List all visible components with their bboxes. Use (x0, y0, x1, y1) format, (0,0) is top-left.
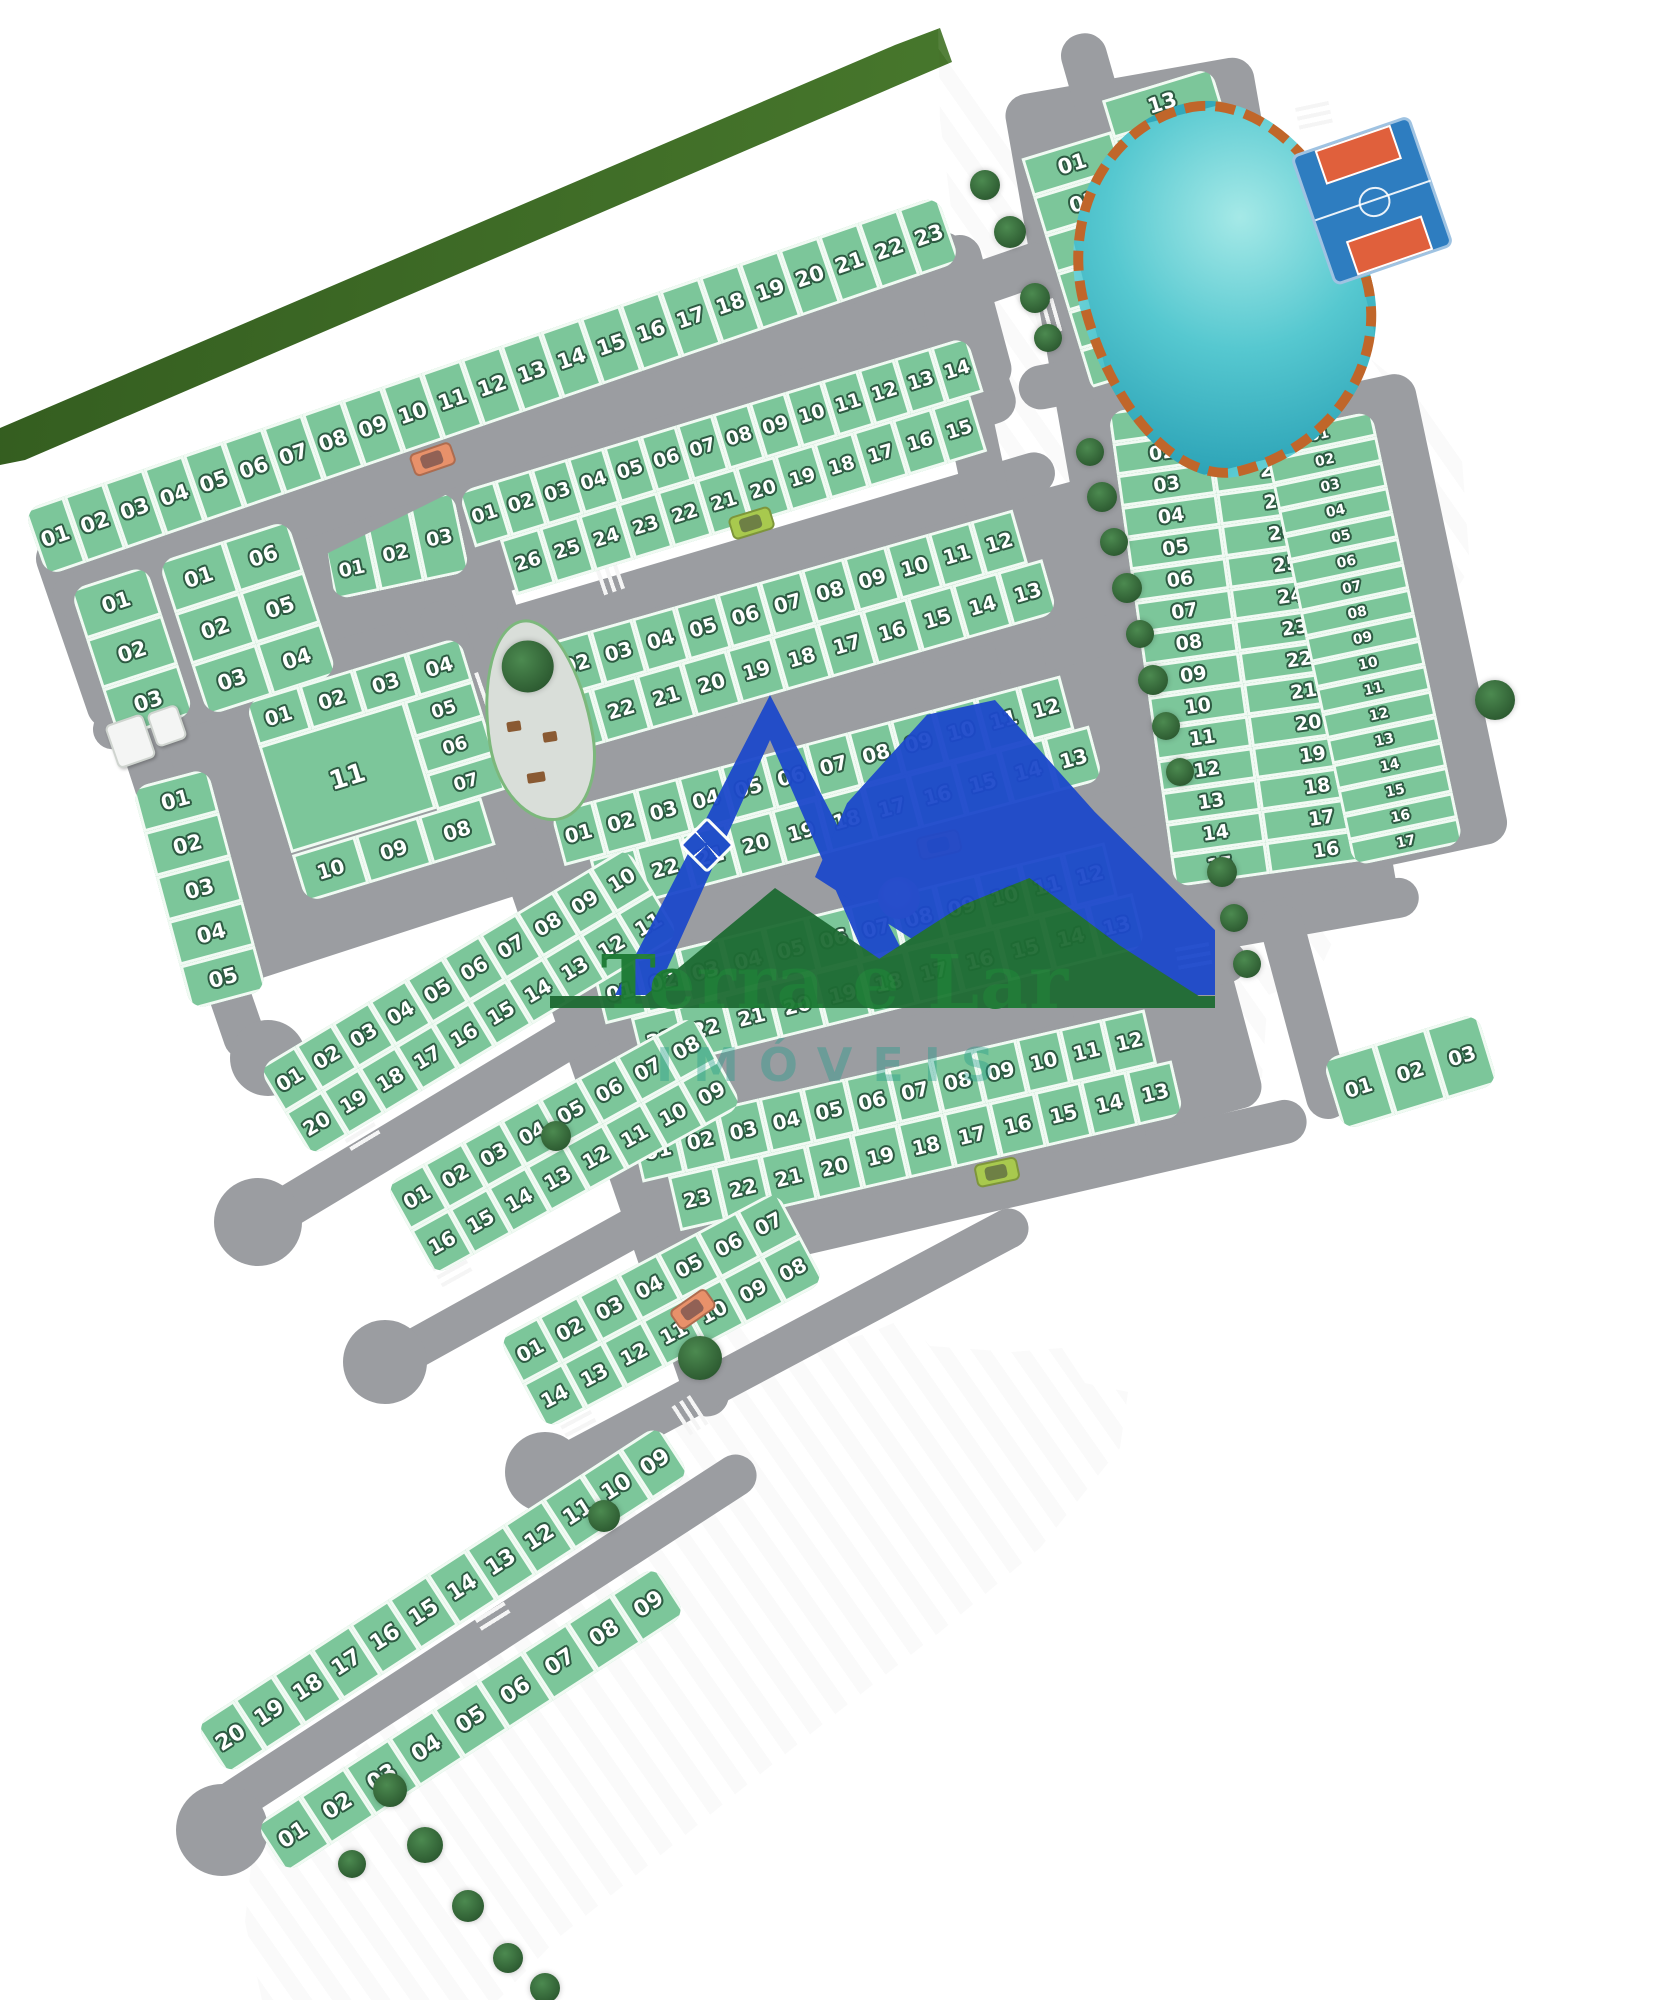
court-key-bottom (1346, 216, 1434, 276)
picnic-table-icon (542, 731, 557, 743)
tree-icon (1020, 283, 1050, 313)
picnic-table-icon (527, 771, 546, 784)
tree-icon (1220, 904, 1248, 932)
tree-icon (1152, 712, 1180, 740)
tree-icon (493, 1943, 523, 1973)
court-key-top (1314, 125, 1402, 185)
tree-icon (452, 1890, 484, 1922)
tree-icon (1076, 438, 1104, 466)
tree-icon (1034, 324, 1062, 352)
tree-icon (1166, 758, 1194, 786)
cul-de-sac (176, 1784, 268, 1876)
site-plan-map: 0102030405060708091011121314151617181920… (0, 0, 1671, 2000)
tree-icon (373, 1773, 407, 1807)
tree-icon (498, 637, 557, 696)
tree-icon (541, 1121, 571, 1151)
tree-icon (1475, 680, 1515, 720)
cul-de-sac (343, 1320, 427, 1404)
picnic-table-icon (506, 720, 521, 732)
tree-icon (338, 1850, 366, 1878)
court-center-circle (1354, 182, 1395, 221)
cul-de-sac (214, 1178, 302, 1266)
tree-icon (994, 216, 1026, 248)
tree-icon (1126, 620, 1154, 648)
tree-icon (1100, 528, 1128, 556)
tree-icon (1207, 857, 1237, 887)
tree-icon (530, 1973, 560, 2000)
tree-icon (678, 1336, 722, 1380)
tree-icon (1112, 573, 1142, 603)
lot-row: 010203 (1322, 1013, 1499, 1131)
flowering-tree-icon (878, 877, 920, 919)
crosswalk-marking (1295, 101, 1333, 132)
tree-icon (1233, 950, 1261, 978)
quadra-br: 010203 (1322, 1013, 1499, 1131)
tree-icon (970, 170, 1000, 200)
tree-icon (1087, 482, 1117, 512)
tree-icon (1138, 665, 1168, 695)
tree-icon (407, 1827, 443, 1863)
tree-icon (588, 1500, 620, 1532)
